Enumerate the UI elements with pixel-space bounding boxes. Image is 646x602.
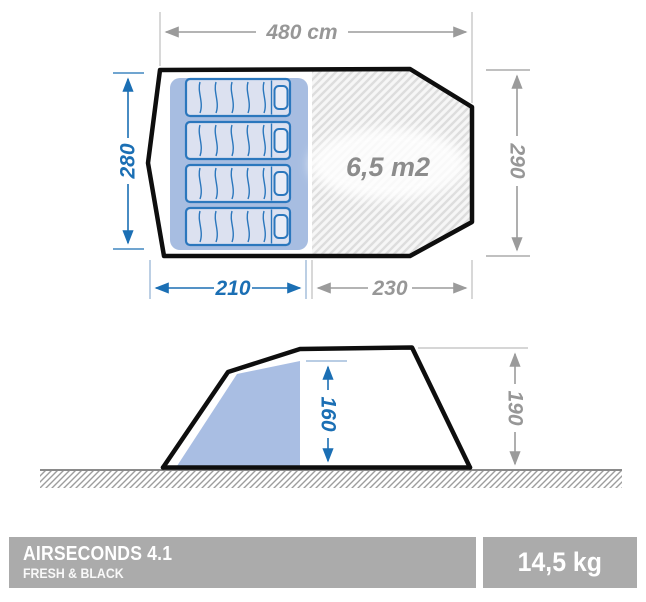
dim-inner-height-label: 160 [317,396,340,431]
dim-bedroom-210: 210 [150,260,306,300]
sleeping-mat [186,165,290,202]
dim-bedroom-label: 210 [214,277,250,300]
product-title-bar: AIRSECONDS 4.1 FRESH & BLACK [9,537,476,588]
sleeping-compartment-profile [176,361,300,468]
living-area-label: 6,5 m2 [346,152,430,182]
product-name: AIRSECONDS 4.1 [23,543,422,565]
weight-value: 14,5 kg [518,547,602,578]
tent-spec-diagram: 6,5 m2 480 cm 280 290 [0,0,646,602]
sideview: 160 190 [0,330,646,502]
dim-living-230: 230 [312,260,472,300]
dim-outer-height-label: 190 [504,390,527,425]
weight-badge: 14,5 kg [483,537,637,588]
dim-width-label: 480 cm [265,21,337,44]
dim-depth-280: 280 [113,73,144,249]
dim-depth-290: 290 [486,70,530,256]
sleeping-mat [186,79,290,116]
sleeping-mat [186,208,290,245]
ground-hatch [40,471,622,488]
dim-depth-left-label: 280 [117,143,140,179]
sleeping-mat [186,122,290,159]
dim-depth-right-label: 290 [506,142,529,178]
product-line: FRESH & BLACK [23,565,422,581]
floorplan-view: 6,5 m2 480 cm 280 290 [0,0,646,310]
dim-living-label: 230 [371,277,407,300]
